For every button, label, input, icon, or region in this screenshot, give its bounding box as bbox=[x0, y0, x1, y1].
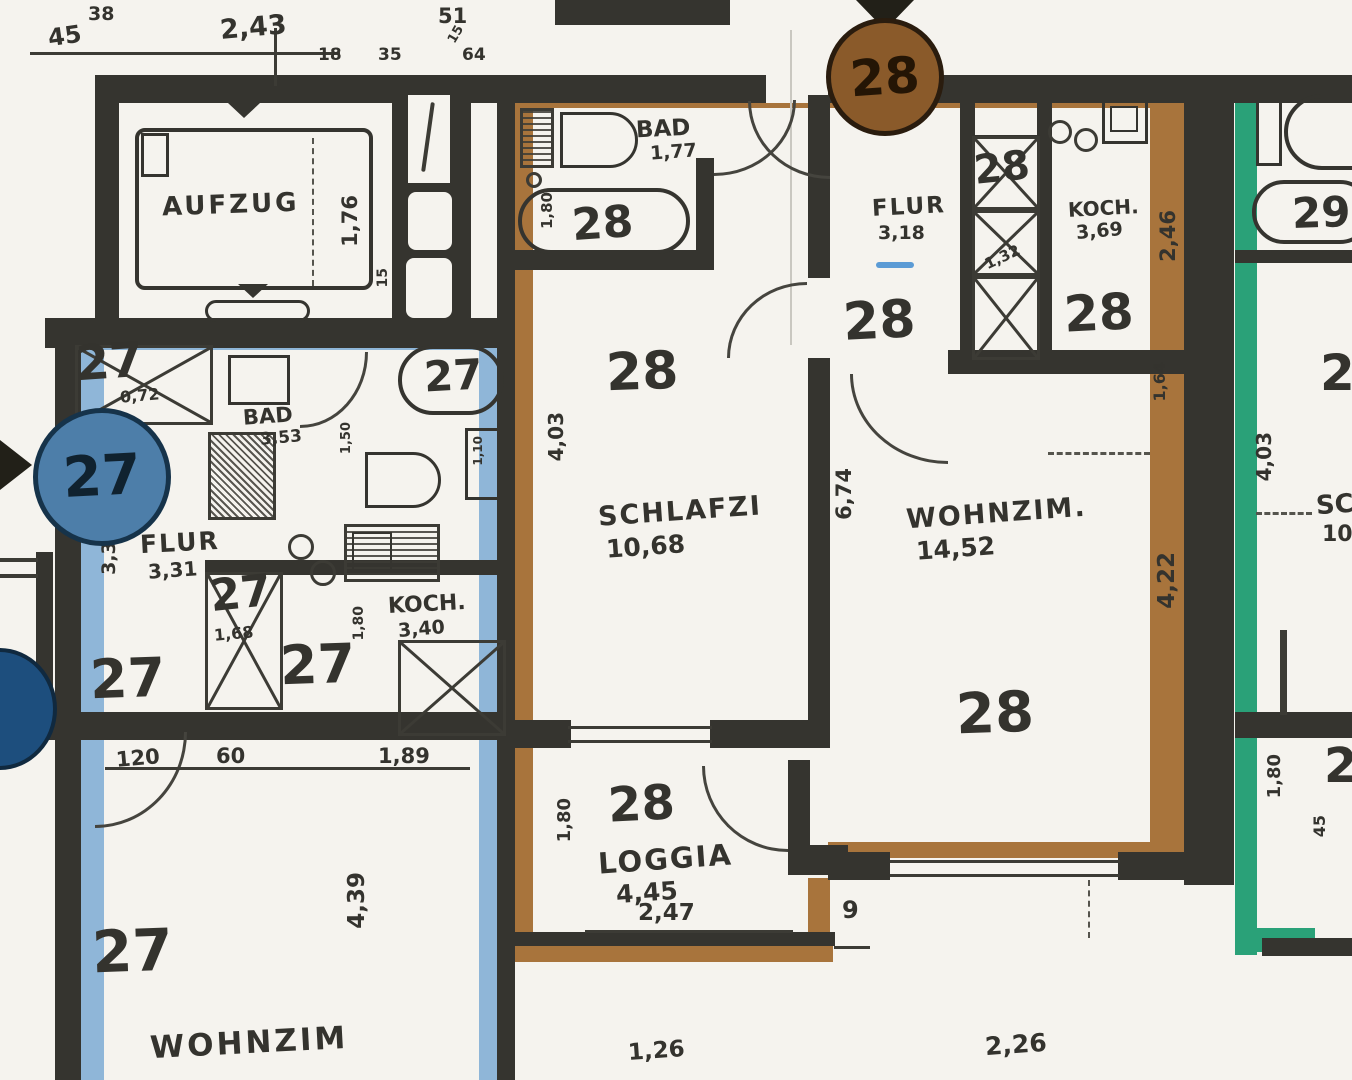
dim-ext-wohnzim bbox=[1088, 880, 1090, 938]
unit-label-27-koch: 27 bbox=[279, 637, 356, 694]
unit-label-28-koch: 28 bbox=[1063, 286, 1135, 340]
wall-bad28-right bbox=[696, 158, 714, 270]
closet27-bottom bbox=[398, 640, 506, 736]
window-schlafzi-line1 bbox=[568, 726, 712, 729]
window-wohnzim-line1 bbox=[890, 860, 1120, 863]
dim-closet27-168: 1,68 bbox=[213, 624, 254, 643]
room-label-wohnzim27: WOHNZIM bbox=[149, 1023, 349, 1064]
unit-label-28-loggia: 28 bbox=[607, 778, 676, 829]
dim-126: 1,26 bbox=[627, 1038, 685, 1065]
area-wohnzim28: 14,52 bbox=[915, 533, 996, 563]
dim-top-45: 45 bbox=[46, 22, 82, 50]
floor-plan: AUFZUG 1,76 15 45 38 2,43 51 18 35 15 64… bbox=[0, 0, 1352, 1080]
area-schlafzi29: 10, bbox=[1322, 524, 1352, 546]
window-schlafzi-line2 bbox=[568, 740, 712, 743]
dim-9: 9 bbox=[842, 898, 859, 922]
elevator-door-sill bbox=[205, 300, 310, 322]
toilet27-icon bbox=[365, 452, 441, 508]
dim-wohnzim28-422: 4,22 bbox=[1156, 552, 1179, 609]
wall-schlafzi-wohnzim bbox=[808, 358, 830, 746]
left-fragment-line1 bbox=[0, 558, 38, 562]
door-arc-entry28 bbox=[748, 101, 830, 179]
unit-label-29: 29 bbox=[1291, 191, 1351, 235]
unit-label-28-tub: 28 bbox=[571, 200, 635, 248]
wall-wohnzim-bottom-right bbox=[1118, 852, 1214, 880]
area-koch27: 3,40 bbox=[397, 618, 445, 641]
room-label-bad27: BAD bbox=[242, 404, 293, 428]
unit-label-27-wohn: 27 bbox=[91, 921, 174, 982]
wall-closet28-left bbox=[960, 95, 972, 373]
room-label-schlafzi29: SC bbox=[1315, 491, 1352, 520]
koch28-divider bbox=[1048, 452, 1150, 455]
fixture29-col bbox=[1256, 94, 1282, 166]
room-label-schlafzi28: SCHLAFZI bbox=[597, 492, 763, 530]
dim-line-loggia bbox=[585, 930, 793, 933]
bathtub29-icon bbox=[1284, 94, 1352, 170]
marker-28-number: 28 bbox=[849, 50, 922, 105]
wall-unit28-right bbox=[1184, 85, 1234, 885]
dim-hall28-674: 6,74 bbox=[834, 468, 855, 520]
marker-27-circle: 27 bbox=[33, 408, 171, 546]
wall-unit29-jamb bbox=[1280, 630, 1287, 715]
wall-schlafzi-bottom-left bbox=[497, 720, 571, 748]
washbasin27-icon bbox=[228, 355, 290, 405]
room-label-loggia28: LOGGIA bbox=[597, 840, 734, 878]
wall-unit29-loggia-top bbox=[1235, 712, 1352, 738]
dim-29-180: 1,80 bbox=[1266, 754, 1284, 798]
unit-label-28-wohnzim: 28 bbox=[955, 685, 1035, 744]
dim-closet27-072: 0,72 bbox=[119, 386, 160, 405]
dim-koch27-180: 1,80 bbox=[352, 606, 366, 641]
stove27-burner2-icon bbox=[310, 560, 336, 586]
wall-unit29-bottom bbox=[1262, 938, 1352, 956]
dim-loggia28-180: 1,80 bbox=[556, 798, 574, 842]
door-marker-bottom-icon bbox=[238, 284, 268, 298]
dim-top-18: 18 bbox=[318, 47, 342, 64]
dim-top-38: 38 bbox=[88, 5, 114, 24]
closet28-shelf bbox=[972, 98, 1040, 138]
toilet28-icon bbox=[560, 112, 638, 168]
dim-27-120: 120 bbox=[115, 746, 161, 771]
unit-label-28-closet: 28 bbox=[972, 145, 1032, 191]
room-label-flur28: FLUR bbox=[871, 194, 946, 221]
dim-aufzug-176: 1,76 bbox=[340, 195, 361, 247]
unit-label-28-flur: 28 bbox=[842, 293, 917, 349]
left-fragment-line2 bbox=[0, 574, 38, 578]
bad28-drain-icon bbox=[526, 172, 542, 188]
wall-wohnzim-bottom-left bbox=[828, 852, 890, 880]
room-label-bad28: BAD bbox=[635, 117, 691, 143]
stove28-burner2-icon bbox=[1074, 128, 1098, 152]
shaft-box-2 bbox=[408, 192, 452, 250]
unit-29-partial-top: 2 bbox=[1320, 348, 1352, 398]
dim-27-439: 4,39 bbox=[346, 872, 369, 929]
unit-label-28-schlafzi: 28 bbox=[605, 345, 679, 399]
dim-bad27-150: 1,50 bbox=[340, 422, 353, 454]
unit28-band-loggia-bottom bbox=[515, 946, 833, 962]
stove27-burner1-icon bbox=[288, 534, 314, 560]
dim-top-64: 64 bbox=[462, 47, 486, 64]
area-flur28: 3,18 bbox=[878, 224, 925, 243]
dim-29-403: 4,03 bbox=[1254, 432, 1274, 481]
dim-aufzug-15: 15 bbox=[376, 268, 390, 287]
door-arc-schlafzi28 bbox=[727, 282, 807, 358]
dim-29-45: 45 bbox=[1312, 815, 1328, 837]
room-label-flur27: FLUR bbox=[139, 528, 220, 557]
area-flur27: 3,31 bbox=[147, 558, 198, 581]
wall-unit29-mid bbox=[1235, 250, 1352, 263]
stove28-burner1-icon bbox=[1048, 120, 1072, 144]
wall-loggia-bottom bbox=[505, 932, 835, 946]
wall-aufzug-left bbox=[95, 75, 119, 325]
dim-top-35: 35 bbox=[378, 47, 402, 64]
door-arc-wohnzim28 bbox=[850, 374, 948, 464]
dim-loggia28-247: 2,47 bbox=[638, 902, 695, 925]
area-koch28: 3,69 bbox=[1075, 220, 1123, 243]
dim-bad27-110: 1,10 bbox=[472, 436, 484, 466]
room-label-aufzug: AUFZUG bbox=[162, 190, 300, 221]
dim-top-243: 2,43 bbox=[219, 11, 288, 44]
unit-label-27-tub: 27 bbox=[423, 353, 484, 398]
bad28-sink-counter bbox=[520, 108, 554, 168]
unit-29-partial-bottom: 2 bbox=[1324, 742, 1352, 790]
sink27-basin bbox=[352, 532, 392, 572]
dim-line-top bbox=[30, 52, 340, 55]
dim-tub28-180: 1,80 bbox=[540, 192, 555, 229]
top-dark-rect bbox=[555, 0, 730, 25]
flur28-blue-dash bbox=[876, 262, 914, 268]
dim-226: 2,26 bbox=[984, 1030, 1047, 1059]
elevator-centerline bbox=[312, 138, 314, 286]
room-label-koch28: KOCH. bbox=[1068, 196, 1140, 220]
dim-tick-9 bbox=[834, 946, 870, 949]
closet28-x3 bbox=[972, 276, 1040, 360]
dim-schlafzi28-403: 4,03 bbox=[546, 412, 566, 461]
unit-label-27-flur: 27 bbox=[89, 651, 166, 708]
wall-schlafzi-bottom-right bbox=[710, 720, 830, 748]
sink28-basin bbox=[1110, 106, 1138, 132]
dim-koch28-246: 2,46 bbox=[1158, 210, 1179, 262]
unit-label-27-closet: 27 bbox=[74, 336, 144, 389]
room-label-wohnzim28: WOHNZIM. bbox=[905, 494, 1087, 534]
area-schlafzi28: 10,68 bbox=[605, 531, 686, 561]
room-label-koch27: KOCH. bbox=[387, 592, 466, 618]
marker-27-number: 27 bbox=[62, 447, 143, 507]
marker-27-arrow-icon bbox=[0, 440, 32, 490]
dim-line-29 bbox=[1256, 512, 1312, 515]
elevator-notch bbox=[141, 133, 169, 177]
marker-28-circle: 28 bbox=[826, 18, 944, 136]
shaft-box-3 bbox=[406, 258, 452, 318]
unit-label-27-closet2: 27 bbox=[208, 569, 273, 619]
dim-27-60: 60 bbox=[216, 746, 245, 767]
closet28-x2 bbox=[972, 210, 1040, 276]
door-arc-bad27 bbox=[300, 352, 368, 428]
wall-top-main bbox=[95, 75, 1352, 103]
area-bad28: 1,77 bbox=[649, 141, 697, 163]
window-wohnzim-line2 bbox=[890, 874, 1120, 877]
area-bad27: 3,53 bbox=[259, 428, 302, 449]
dim-27-189: 1,89 bbox=[378, 746, 430, 767]
dim-wohnzim28-164: 1,64 bbox=[1152, 362, 1168, 401]
door-marker-top-icon bbox=[228, 103, 260, 118]
